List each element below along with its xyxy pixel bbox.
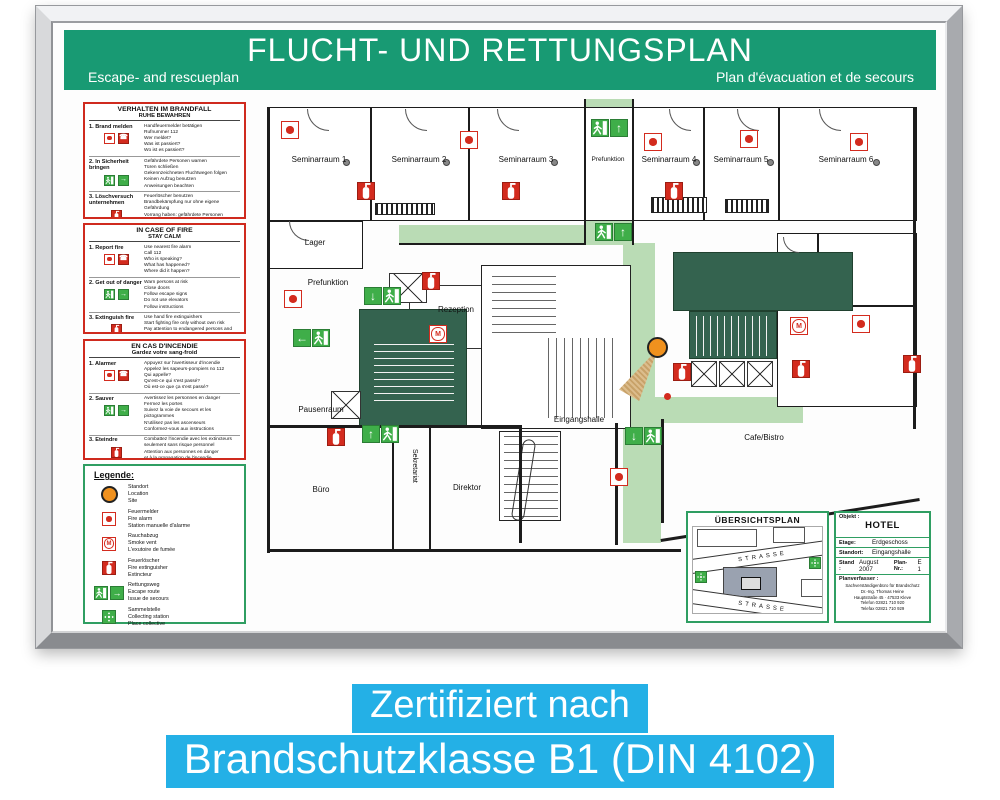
stairwell-right-lower [689, 311, 777, 359]
fire-extinguisher-icon [903, 355, 921, 373]
step-label: 3. Löschversuch unternehmen [89, 194, 133, 206]
step-label: 1. Report fire [89, 245, 124, 251]
room-label: Seminarraum 1 [292, 155, 347, 164]
fire-alarm-icon [281, 121, 299, 139]
wall [392, 427, 394, 549]
fire-alarm-icon [740, 130, 758, 148]
legend-item-text: Sammelstelle Collecting station Place co… [128, 607, 169, 628]
phone-icon: ☎ [118, 133, 129, 144]
overview-title: ÜBERSICHTSPLAN [688, 515, 827, 525]
banner-line-1: Zertifiziert nach [352, 684, 648, 733]
instruction-step: 2. Get out of danger → Warn persons at r… [89, 277, 240, 312]
etage-value: Erdgeschoss [872, 539, 908, 546]
smoke-vent-icon: M [429, 325, 447, 343]
fire-extinguisher-icon [357, 182, 375, 200]
legend-item: Feuerlöscher Fire extinguisher Extincteu… [90, 558, 239, 579]
fire-extinguisher-icon [422, 272, 440, 290]
fire-alarm-icon [850, 133, 868, 151]
exit-man-icon [383, 287, 401, 305]
legend-title: Legende: [94, 470, 239, 480]
instructions-english: IN CASE OF FIRE STAY CALM 1. Report fire… [83, 223, 246, 334]
central-staircase [481, 265, 631, 429]
fire-alarm-icon [852, 315, 870, 333]
room-label: Cafe/Bistro [744, 433, 784, 442]
etage-label: Etage: [839, 540, 869, 546]
legend: Legende: Standort Location Site Feuermel… [83, 464, 246, 624]
room-label: Seminarraum 6 [819, 155, 874, 164]
stairwell-left [359, 309, 467, 427]
exit-man-icon [381, 425, 399, 443]
fire-alarm-icon [104, 254, 115, 265]
page-title: FLUCHT- UND RETTUNGSPLAN [64, 32, 936, 69]
exit-man-icon [595, 223, 613, 241]
down-arrow-icon: ↓ [625, 427, 643, 445]
room-label: Eingangshalle [554, 415, 604, 424]
assembly-point-icon [102, 610, 116, 624]
divider [89, 357, 240, 358]
room-label: Direktor [453, 483, 481, 492]
exit-man-icon [312, 329, 330, 347]
fire-extinguisher-icon [111, 210, 122, 219]
step-text: Warn persons at risk Close doors Follow … [144, 280, 240, 311]
instruction-step: 2. In Sicherheit bringen → Gefährdete Pe… [89, 156, 240, 191]
instruction-step: 1. Alarmer ☎ Appuyez sur l'avertisseur d… [89, 359, 240, 393]
up-arrow-icon: ↑ [362, 425, 380, 443]
room-label: Lager [305, 238, 325, 247]
planverfasser-text: Sachverständigenbüro für Brandschutz Dr.… [839, 583, 926, 612]
wall [429, 427, 431, 549]
wall [399, 243, 586, 245]
instructions-german: VERHALTEN IM BRANDFALL RUHE BEWAHREN 1. … [83, 102, 246, 219]
right-arrow-icon: → [110, 586, 124, 600]
location-icon [647, 337, 668, 358]
exit-man-icon [104, 289, 115, 300]
certification-banner: Zertifiziert nach Brandschutzklasse B1 (… [0, 684, 1000, 788]
step-text: Use nearest fire alarm Call 112 Who is s… [144, 245, 240, 276]
wall [519, 425, 522, 543]
objekt-value: HOTEL [839, 520, 926, 531]
fire-alarm-icon [610, 468, 628, 486]
exit-man-icon [104, 175, 115, 186]
fire-extinguisher-icon [665, 182, 683, 200]
box-title: VERHALTEN IM BRANDFALL [89, 106, 240, 113]
instruction-step: 3. Löschversuch unternehmen Feuerlöscher… [89, 191, 240, 219]
legend-item: Feuermelder Fire alarm Station manuelle … [90, 509, 239, 530]
plan-nr-value: E 1 [918, 559, 927, 573]
legend-item: Sammelstelle Collecting station Place co… [90, 607, 239, 628]
room-label: Seminarraum 4 [642, 155, 697, 164]
box-subtitle: STAY CALM [89, 234, 240, 240]
up-arrow-icon: ↑ [614, 223, 632, 241]
legend-item-text: Feuermelder Fire alarm Station manuelle … [128, 509, 190, 530]
standort-label: Standort: [839, 550, 869, 556]
room-label: Seminarraum 3 [499, 155, 554, 164]
banner-line-2: Brandschutzklasse B1 (DIN 4102) [166, 735, 835, 788]
wall [913, 107, 916, 429]
plan-nr-label: Plan-Nr.: [894, 560, 915, 572]
street-label: STRASSE [738, 550, 787, 563]
standort-value: Eingangshalle [872, 549, 911, 556]
right-arrow-icon: → [118, 405, 129, 416]
elevator [747, 361, 773, 387]
instruction-step: 3. Extinguish fire Use hand fire extingu… [89, 312, 240, 334]
elevator [691, 361, 717, 387]
escape-plan-poster: FLUCHT- UND RETTUNGSPLAN Escape- and res… [53, 23, 947, 631]
objekt-row: Objekt : HOTEL [836, 513, 929, 537]
planverfasser-row: Planverfasser : Sachverständigenbüro für… [836, 574, 929, 613]
building-outline [697, 529, 757, 547]
bench [375, 203, 435, 215]
stairwell-right [673, 252, 853, 311]
step-text: Combattez l'incendie avec les extincteur… [144, 437, 240, 460]
wall [370, 107, 372, 221]
floor-plan: M M ↑ ↑ ↓ ← ↑ ↓ Seminarraum 1 Seminarrau… [259, 97, 941, 631]
step-label: 2. Sauver [89, 396, 114, 402]
building-outline [801, 579, 823, 597]
location-icon [101, 486, 118, 503]
fire-extinguisher-icon [111, 447, 122, 458]
fire-extinguisher-icon [673, 363, 691, 381]
fire-extinguisher-icon [102, 561, 116, 575]
step-text: Use hand fire extinguishers Start fighti… [144, 315, 240, 334]
building-outline [773, 527, 805, 543]
instruction-step: 2. Sauver → Avertissez les personnes en … [89, 393, 240, 434]
fire-alarm-icon [284, 290, 302, 308]
wall [778, 107, 780, 221]
legend-item-text: Standort Location Site [128, 484, 148, 505]
room-label: Seminarraum 2 [392, 155, 447, 164]
instruction-step: 1. Report fire ☎ Use nearest fire alarm … [89, 243, 240, 277]
phone-icon: ☎ [118, 370, 129, 381]
product-photo: FLUCHT- UND RETTUNGSPLAN Escape- and res… [0, 0, 1000, 800]
exit-man-icon [104, 405, 115, 416]
step-label: 2. In Sicherheit bringen [89, 159, 129, 171]
legend-item-text: Feuerlöscher Fire extinguisher Extincteu… [128, 558, 168, 579]
overview-map: STRASSE STRASSE [692, 526, 823, 614]
up-arrow-icon: ↑ [610, 119, 628, 137]
wall [267, 107, 270, 553]
room-label: Rezeption [438, 305, 474, 314]
objekt-label: Objekt : [839, 514, 859, 520]
step-text: Appuyez sur l'avertisseur d'incendie App… [144, 361, 240, 392]
wall [267, 549, 681, 552]
fire-alarm-icon [102, 512, 116, 526]
assembly-point-icon [695, 571, 707, 583]
step-label: 3. Extinguish fire [89, 315, 134, 321]
marker-dot [664, 393, 671, 400]
planverfasser-label: Planverfasser : [839, 576, 878, 582]
fire-extinguisher-icon [502, 182, 520, 200]
subtitle-english: Escape- and rescueplan [88, 69, 239, 85]
smoke-vent-icon: M [790, 317, 808, 335]
legend-item: M Rauchabzug Smoke vent L'exutoire de fu… [90, 533, 239, 554]
hotel-building [723, 567, 777, 597]
down-arrow-icon: ↓ [364, 287, 382, 305]
overview-map-box: ÜBERSICHTSPLAN STRASSE STRASSE [686, 511, 829, 623]
step-label: 1. Brand melden [89, 124, 133, 130]
step-text: Feuerlöscher benutzen Brandbekämpfung nu… [144, 194, 240, 219]
plan-title-block: Objekt : HOTEL Etage: Erdgeschoss Stando… [834, 511, 931, 623]
exit-man-icon [644, 427, 662, 445]
box-title: EN CAS D'INCENDIE [89, 343, 240, 350]
right-arrow-icon: → [118, 175, 129, 186]
assembly-point-icon [809, 557, 821, 569]
exit-man-icon [591, 119, 609, 137]
left-arrow-icon: ← [293, 329, 311, 347]
fire-extinguisher-icon [111, 324, 122, 334]
room-label: Prefunktion [592, 156, 625, 163]
elevator [719, 361, 745, 387]
step-label: 1. Alarmer [89, 361, 116, 367]
stand-value: August 2007 [859, 559, 891, 573]
etage-row: Etage: Erdgeschoss [836, 537, 929, 547]
room-label: Büro [313, 485, 330, 494]
detector-dot [873, 159, 880, 166]
fire-alarm-icon [104, 370, 115, 381]
right-arrow-icon: → [118, 289, 129, 300]
step-text: Handfeuermelder betätigen Rufnummer 112 … [144, 124, 240, 155]
divider [89, 120, 240, 121]
room-label: Seminarraum 5 [714, 155, 769, 164]
instruction-step: 1. Brand melden ☎ Handfeuermelder betäti… [89, 122, 240, 156]
fire-extinguisher-icon [327, 428, 345, 446]
wall [468, 107, 470, 221]
fire-alarm-icon [104, 133, 115, 144]
divider [89, 241, 240, 242]
standort-row: Standort: Eingangshalle [836, 547, 929, 557]
fire-alarm-icon [460, 131, 478, 149]
step-label: 2. Get out of danger [89, 280, 142, 286]
bench [725, 199, 769, 213]
room-label: Sekretariat [411, 449, 418, 483]
instruction-step: 3. Eteindre Combattez l'incendie avec le… [89, 435, 240, 460]
box-subtitle: Gardez votre sang-froid [89, 350, 240, 356]
subtitle-french: Plan d'évacuation et de secours [716, 69, 914, 85]
box-title: IN CASE OF FIRE [89, 227, 240, 234]
legend-item-text: Rettungsweg Escape route Issue de secour… [128, 582, 169, 603]
step-text: Gefährdete Personen warnen Türen schließ… [144, 159, 240, 190]
room-label: Prefunktion [308, 278, 348, 287]
wall [632, 99, 634, 245]
step-text: Avertissez les personnes en danger Ferme… [144, 396, 240, 433]
smoke-vent-icon: M [102, 537, 116, 551]
legend-item: Standort Location Site [90, 484, 239, 505]
fire-extinguisher-icon [792, 360, 810, 378]
instructions-french: EN CAS D'INCENDIE Gardez votre sang-froi… [83, 339, 246, 460]
room-label: Pausenraum [298, 405, 343, 414]
escape-route-path [623, 397, 803, 423]
exit-man-icon [94, 586, 108, 600]
phone-icon: ☎ [118, 254, 129, 265]
legend-item-text: Rauchabzug Smoke vent L'exutoire de fumé… [128, 533, 175, 554]
step-label: 3. Eteindre [89, 437, 118, 443]
poster-header: FLUCHT- UND RETTUNGSPLAN Escape- and res… [64, 30, 936, 90]
stand-label: Stand : [839, 560, 856, 572]
street-label: STRASSE [738, 600, 787, 613]
fire-alarm-icon [644, 133, 662, 151]
legend-item: → Rettungsweg Escape route Issue de seco… [90, 582, 239, 603]
wall [584, 99, 586, 245]
box-subtitle: RUHE BEWAHREN [89, 113, 240, 119]
stand-row: Stand : August 2007 Plan-Nr.: E 1 [836, 557, 929, 574]
